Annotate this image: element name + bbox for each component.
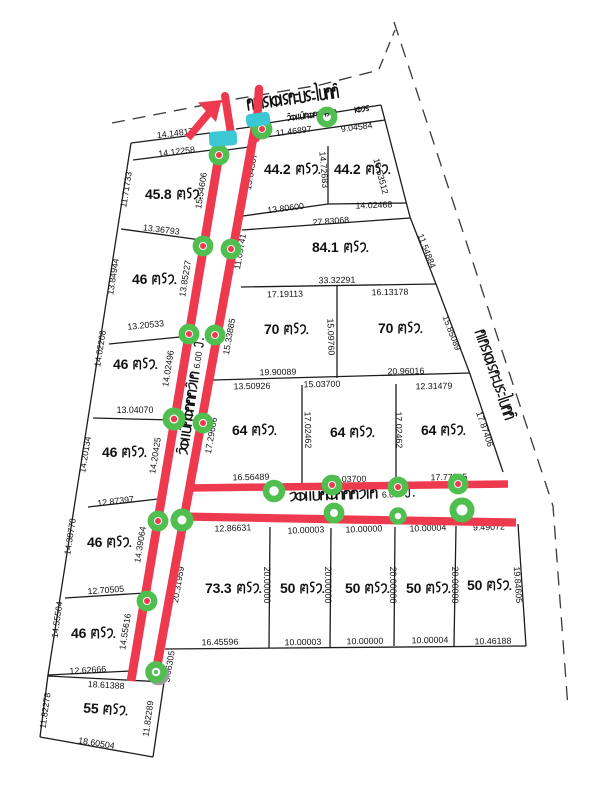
svg-text:20.96016: 20.96016 xyxy=(388,366,425,377)
svg-text:15.09760: 15.09760 xyxy=(325,318,336,355)
svg-text:12.62666: 12.62666 xyxy=(69,664,106,676)
svg-text:17.02462: 17.02462 xyxy=(394,412,405,449)
svg-text:50: 50 xyxy=(280,580,296,596)
svg-text:46: 46 xyxy=(113,356,129,372)
svg-text:44.2: 44.2 xyxy=(264,161,291,177)
svg-text:33.32291: 33.32291 xyxy=(319,275,356,286)
svg-text:70: 70 xyxy=(264,321,280,337)
svg-text:46: 46 xyxy=(71,625,87,641)
svg-text:10.00000: 10.00000 xyxy=(345,523,382,534)
svg-text:50: 50 xyxy=(345,580,361,596)
svg-text:64: 64 xyxy=(232,422,248,438)
svg-text:13.04070: 13.04070 xyxy=(117,405,154,415)
svg-text:46: 46 xyxy=(87,534,103,550)
svg-text:10.00004: 10.00004 xyxy=(412,635,449,646)
svg-text:18.61388: 18.61388 xyxy=(88,679,125,691)
svg-text:10.46188: 10.46188 xyxy=(475,636,512,647)
svg-text:10.00003: 10.00003 xyxy=(287,524,324,535)
svg-text:50: 50 xyxy=(406,580,422,596)
svg-text:10.00000: 10.00000 xyxy=(347,636,384,647)
svg-text:14.02468: 14.02468 xyxy=(355,199,392,210)
svg-text:12.31479: 12.31479 xyxy=(416,381,453,392)
svg-text:46: 46 xyxy=(102,444,118,460)
svg-text:19.90089: 19.90089 xyxy=(260,367,297,378)
svg-text:64: 64 xyxy=(330,424,346,440)
svg-text:16.56489: 16.56489 xyxy=(233,472,270,483)
svg-text:15.03700: 15.03700 xyxy=(304,379,341,390)
svg-text:12.86631: 12.86631 xyxy=(214,522,251,533)
svg-text:70: 70 xyxy=(378,320,394,336)
svg-text:45.8: 45.8 xyxy=(145,186,172,202)
svg-text:55: 55 xyxy=(83,699,100,716)
svg-text:17.02462: 17.02462 xyxy=(303,412,314,449)
svg-text:16.45596: 16.45596 xyxy=(202,637,239,648)
svg-text:20.00000: 20.00000 xyxy=(262,567,272,604)
svg-text:50: 50 xyxy=(467,577,483,593)
svg-text:73.3: 73.3 xyxy=(205,580,232,596)
svg-text:10.00003: 10.00003 xyxy=(285,637,322,648)
svg-text:13.50926: 13.50926 xyxy=(234,381,271,392)
svg-text:20.00000: 20.00000 xyxy=(388,567,398,604)
svg-text:20.00000: 20.00000 xyxy=(323,567,333,604)
svg-text:20.00000: 20.00000 xyxy=(450,567,460,604)
svg-text:16.13178: 16.13178 xyxy=(372,287,409,298)
svg-text:46: 46 xyxy=(132,271,148,287)
svg-text:17.19113: 17.19113 xyxy=(267,289,303,300)
svg-text:84.1: 84.1 xyxy=(312,239,339,255)
svg-text:44.2: 44.2 xyxy=(334,161,361,177)
svg-text:64: 64 xyxy=(421,422,437,438)
